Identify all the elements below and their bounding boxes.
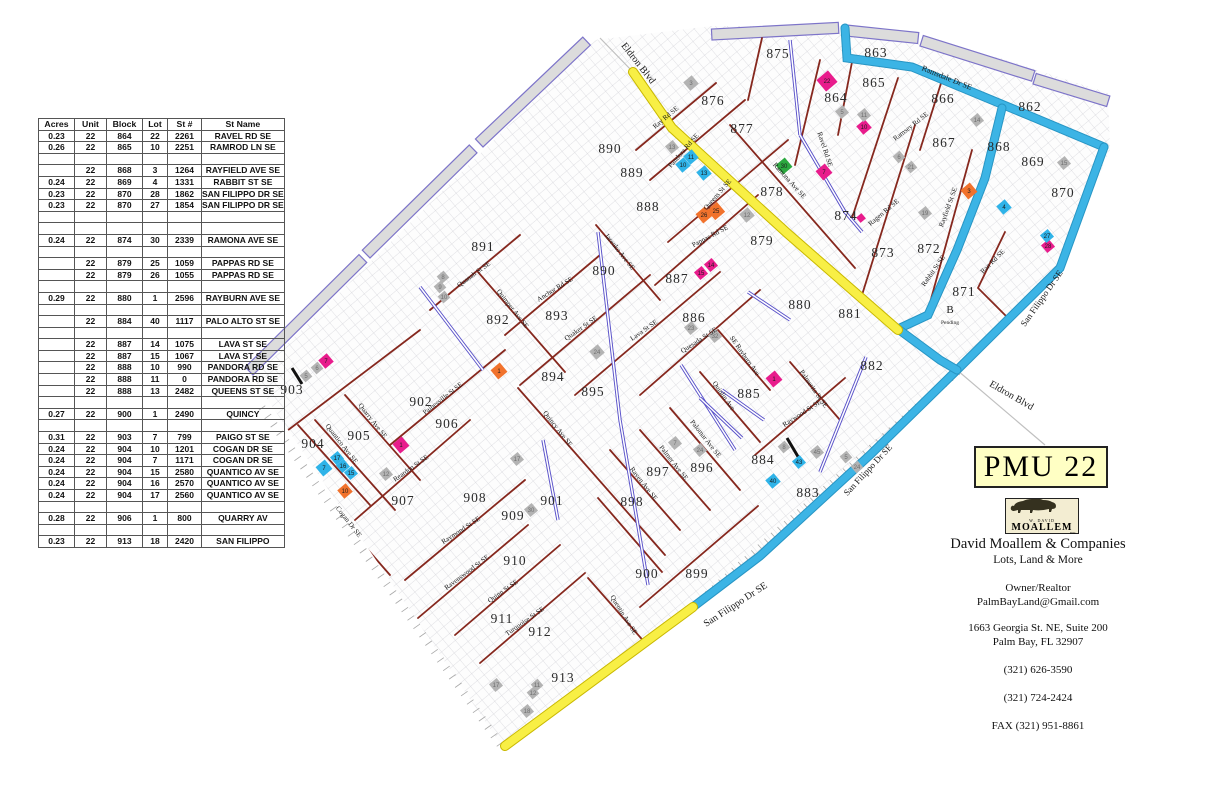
table-cell bbox=[168, 304, 202, 316]
boundary-tick bbox=[390, 590, 397, 595]
table-cell bbox=[39, 385, 75, 397]
table-cell bbox=[107, 420, 143, 432]
table-cell: 22 bbox=[75, 316, 107, 328]
pmu-title: PMU 22 bbox=[984, 450, 1099, 484]
block-number: 883 bbox=[796, 485, 819, 500]
lot-table-body: 0.2322864222261RAVEL RD SE0.262286510225… bbox=[39, 130, 285, 547]
table-cell: 1171 bbox=[168, 455, 202, 467]
table-cell bbox=[143, 304, 168, 316]
table-cell: 2570 bbox=[168, 478, 202, 490]
table-cell: COGAN DR SE bbox=[202, 455, 285, 467]
table-cell bbox=[75, 153, 107, 165]
table-cell: 10 bbox=[143, 142, 168, 154]
block-number: 900 bbox=[635, 566, 658, 581]
block-number: 867 bbox=[932, 135, 955, 150]
lot-number: 12 bbox=[530, 691, 537, 697]
table-cell: 2580 bbox=[168, 466, 202, 478]
table-cell: 904 bbox=[107, 443, 143, 455]
street-label: Eldron Blvd bbox=[987, 379, 1035, 413]
table-cell: RAMONA AVE SE bbox=[202, 234, 285, 246]
table-cell: 2339 bbox=[168, 234, 202, 246]
pending-label: Pending bbox=[941, 320, 959, 326]
table-cell: 864 bbox=[107, 130, 143, 142]
lot-number: 45 bbox=[814, 450, 821, 456]
table-cell: RAVEL RD SE bbox=[202, 130, 285, 142]
table-cell bbox=[39, 281, 75, 293]
table-cell: PAPPAS RD SE bbox=[202, 258, 285, 270]
lot-number: 27 bbox=[1044, 234, 1051, 240]
table-row: 0.2322870281862SAN FILIPPO DR SE bbox=[39, 188, 285, 200]
table-cell: 10 bbox=[143, 443, 168, 455]
block-number: 864 bbox=[824, 90, 847, 105]
boundary-tick bbox=[384, 582, 391, 587]
table-cell bbox=[143, 524, 168, 536]
block-number: 888 bbox=[636, 199, 659, 214]
lot-number: 17 bbox=[514, 457, 521, 463]
table-cell: 22 bbox=[75, 142, 107, 154]
lot-number: 26 bbox=[701, 213, 708, 219]
table-row: 22887151067LAVA ST SE bbox=[39, 350, 285, 362]
table-cell: PAPPAS RD SE bbox=[202, 269, 285, 281]
table-cell bbox=[168, 211, 202, 223]
boundary-tick bbox=[318, 490, 325, 495]
lot-number: 13 bbox=[701, 171, 708, 177]
boundary-tick bbox=[407, 616, 414, 621]
boundary-tick bbox=[372, 565, 379, 570]
table-cell bbox=[143, 397, 168, 409]
table-cell: 2596 bbox=[168, 292, 202, 304]
table-cell: 2560 bbox=[168, 490, 202, 502]
table-cell: QUANTICO AV SE bbox=[202, 466, 285, 478]
boundary-tick bbox=[378, 574, 385, 579]
table-cell bbox=[75, 524, 107, 536]
table-cell bbox=[75, 501, 107, 513]
table-cell: 1264 bbox=[168, 165, 202, 177]
table-cell bbox=[202, 223, 285, 235]
table-cell: 904 bbox=[107, 466, 143, 478]
table-cell: 0.29 bbox=[39, 292, 75, 304]
block-number: 880 bbox=[788, 297, 811, 312]
table-cell bbox=[168, 524, 202, 536]
block-number: 874 bbox=[834, 208, 857, 223]
table-row bbox=[39, 246, 285, 258]
table-cell: 0.26 bbox=[39, 142, 75, 154]
lot-number: 43 bbox=[796, 460, 803, 466]
table-cell: 0.23 bbox=[39, 188, 75, 200]
table-cell: 0.23 bbox=[39, 536, 75, 548]
table-cell: 22 bbox=[75, 466, 107, 478]
boundary-tick bbox=[449, 674, 456, 679]
moallem-logo: W. DAVID MOALLEM INC bbox=[1005, 498, 1079, 534]
pmu-title-box: PMU 22 bbox=[974, 446, 1108, 488]
table-cell: 1117 bbox=[168, 316, 202, 328]
table-cell bbox=[168, 501, 202, 513]
lot-number: 18 bbox=[524, 709, 531, 715]
table-row: 22879251059PAPPAS RD SE bbox=[39, 258, 285, 270]
table-cell bbox=[75, 397, 107, 409]
table-cell: 22 bbox=[75, 165, 107, 177]
table-cell bbox=[39, 316, 75, 328]
block-number: 891 bbox=[471, 239, 494, 254]
table-row: 0.2322870271854SAN FILIPPO DR SE bbox=[39, 200, 285, 212]
table-cell bbox=[168, 223, 202, 235]
table-cell: LAVA ST SE bbox=[202, 350, 285, 362]
block-number: 878 bbox=[760, 184, 783, 199]
table-cell: RAYBURN AVE SE bbox=[202, 292, 285, 304]
table-cell: 0.27 bbox=[39, 408, 75, 420]
table-cell: 0.23 bbox=[39, 130, 75, 142]
table-cell: 2482 bbox=[168, 385, 202, 397]
table-row: 22888110PANDORA RD SE bbox=[39, 374, 285, 386]
table-cell bbox=[39, 397, 75, 409]
table-cell bbox=[168, 420, 202, 432]
boundary-tick bbox=[306, 473, 313, 478]
map-sheet: 2210728151411726253110111013427434017716… bbox=[0, 0, 1210, 792]
lot-number: 10 bbox=[680, 163, 687, 169]
table-cell bbox=[107, 327, 143, 339]
column-header: Acres bbox=[39, 119, 75, 131]
table-cell bbox=[143, 327, 168, 339]
table-cell: 22 bbox=[75, 536, 107, 548]
block-number: 910 bbox=[503, 553, 526, 568]
table-cell bbox=[107, 397, 143, 409]
table-cell: 7 bbox=[143, 432, 168, 444]
fax-number: FAX (321) 951-8861 bbox=[950, 720, 1126, 732]
block-number: 881 bbox=[838, 306, 861, 321]
block-number: 893 bbox=[545, 308, 568, 323]
lot-number: 17 bbox=[334, 456, 341, 462]
lot-listing-table: AcresUnitBlockLotSt #St Name 0.232286422… bbox=[38, 118, 285, 548]
lot-number: 24 bbox=[697, 448, 704, 454]
table-cell: 1201 bbox=[168, 443, 202, 455]
table-cell bbox=[75, 281, 107, 293]
lot-number: 10 bbox=[861, 125, 868, 131]
column-header: St Name bbox=[202, 119, 285, 131]
table-cell: 22 bbox=[75, 339, 107, 351]
table-cell bbox=[168, 246, 202, 258]
table-cell: 22 bbox=[75, 490, 107, 502]
table-cell: LAVA ST SE bbox=[202, 339, 285, 351]
table-cell: 1 bbox=[143, 408, 168, 420]
table-row bbox=[39, 420, 285, 432]
block-number: 879 bbox=[750, 233, 773, 248]
table-cell: SAN FILIPPO DR SE bbox=[202, 200, 285, 212]
table-cell bbox=[39, 420, 75, 432]
block-number: 866 bbox=[931, 91, 954, 106]
table-cell bbox=[39, 269, 75, 281]
block-number: 862 bbox=[1018, 99, 1041, 114]
table-cell: RAYFIELD AVE SE bbox=[202, 165, 285, 177]
company-tagline: Lots, Land & More bbox=[950, 554, 1126, 566]
table-cell: 22 bbox=[75, 130, 107, 142]
table-cell: 865 bbox=[107, 142, 143, 154]
lot-number: 14 bbox=[708, 263, 715, 269]
table-row bbox=[39, 327, 285, 339]
lot-number: 23 bbox=[688, 326, 695, 332]
table-cell bbox=[75, 246, 107, 258]
lot-number: 14 bbox=[974, 118, 981, 124]
lot-number: 10 bbox=[342, 489, 349, 495]
block-number: 882 bbox=[860, 358, 883, 373]
table-cell: RABBIT ST SE bbox=[202, 176, 285, 188]
table-cell bbox=[75, 327, 107, 339]
block-number: 908 bbox=[463, 490, 486, 505]
table-cell: 1854 bbox=[168, 200, 202, 212]
table-cell: 15 bbox=[143, 350, 168, 362]
boundary-tick bbox=[431, 649, 438, 654]
lot-number: 15 bbox=[698, 271, 705, 277]
table-cell: 0.31 bbox=[39, 432, 75, 444]
lot-number: 11 bbox=[688, 155, 695, 161]
table-cell: 10 bbox=[143, 362, 168, 374]
table-row: 0.2422904162570QUANTICO AV SE bbox=[39, 478, 285, 490]
block-number: 875 bbox=[766, 46, 789, 61]
table-cell: 888 bbox=[107, 362, 143, 374]
table-cell: 0.24 bbox=[39, 478, 75, 490]
table-cell: 0.24 bbox=[39, 234, 75, 246]
table-cell: 22 bbox=[75, 513, 107, 525]
table-row: 0.2322913182420SAN FILIPPO bbox=[39, 536, 285, 548]
block-number: 885 bbox=[737, 386, 760, 401]
table-cell: 7 bbox=[143, 455, 168, 467]
table-cell: 870 bbox=[107, 188, 143, 200]
table-row: 2288810990PANDORA RD SE bbox=[39, 362, 285, 374]
table-cell: 1862 bbox=[168, 188, 202, 200]
boundary-tick bbox=[396, 599, 403, 604]
block-number: 876 bbox=[701, 93, 724, 108]
table-cell: 0.28 bbox=[39, 513, 75, 525]
table-cell: QUEENS ST SE bbox=[202, 385, 285, 397]
table-cell bbox=[39, 339, 75, 351]
block-number: 897 bbox=[646, 464, 669, 479]
lot-number: 22 bbox=[824, 79, 831, 85]
lot-number: 17 bbox=[493, 683, 500, 689]
boundary-tick bbox=[300, 464, 307, 469]
lion-icon bbox=[1007, 499, 1077, 513]
table-cell: 913 bbox=[107, 536, 143, 548]
block-number: 906 bbox=[435, 416, 458, 431]
table-row: 0.292288012596RAYBURN AVE SE bbox=[39, 292, 285, 304]
table-cell: PANDORA RD SE bbox=[202, 374, 285, 386]
owner-role: Owner/Realtor bbox=[950, 582, 1126, 594]
table-cell: 887 bbox=[107, 350, 143, 362]
table-cell: 0.23 bbox=[39, 200, 75, 212]
contact-block: David Moallem & Companies Lots, Land & M… bbox=[950, 536, 1126, 732]
table-cell bbox=[143, 420, 168, 432]
table-cell bbox=[39, 362, 75, 374]
table-row bbox=[39, 281, 285, 293]
table-cell: QUANTICO AV SE bbox=[202, 478, 285, 490]
block-number: 912 bbox=[528, 624, 551, 639]
table-row bbox=[39, 304, 285, 316]
table-cell: PANDORA RD SE bbox=[202, 362, 285, 374]
table-cell: 2261 bbox=[168, 130, 202, 142]
table-cell: 888 bbox=[107, 385, 143, 397]
table-cell bbox=[39, 327, 75, 339]
column-header: Lot bbox=[143, 119, 168, 131]
table-cell: 26 bbox=[143, 269, 168, 281]
table-cell: 0.24 bbox=[39, 455, 75, 467]
table-cell: 870 bbox=[107, 200, 143, 212]
table-cell: 22 bbox=[75, 188, 107, 200]
table-cell: 1075 bbox=[168, 339, 202, 351]
table-cell: 22 bbox=[75, 385, 107, 397]
table-cell: 869 bbox=[107, 176, 143, 188]
logo-name-text: MOALLEM bbox=[1006, 523, 1078, 532]
table-cell: 22 bbox=[75, 234, 107, 246]
company-name: David Moallem & Companies bbox=[950, 536, 1126, 553]
table-cell bbox=[39, 153, 75, 165]
block-number: 894 bbox=[541, 369, 564, 384]
table-cell: 22 bbox=[75, 374, 107, 386]
lot-number: 10 bbox=[441, 295, 448, 301]
table-cell bbox=[168, 281, 202, 293]
block-number: 895 bbox=[581, 384, 604, 399]
table-cell: QUINCY bbox=[202, 408, 285, 420]
table-row: 0.2322864222261RAVEL RD SE bbox=[39, 130, 285, 142]
table-cell bbox=[202, 327, 285, 339]
table-cell: PALO ALTO ST SE bbox=[202, 316, 285, 328]
table-cell bbox=[143, 501, 168, 513]
boundary-tick bbox=[419, 632, 426, 637]
table-cell bbox=[143, 153, 168, 165]
table-cell: 903 bbox=[107, 432, 143, 444]
lot-number: 13 bbox=[669, 145, 676, 151]
table-cell: 17 bbox=[143, 490, 168, 502]
table-cell: 1055 bbox=[168, 269, 202, 281]
table-cell bbox=[107, 501, 143, 513]
table-cell: 990 bbox=[168, 362, 202, 374]
table-cell: 22 bbox=[75, 478, 107, 490]
table-cell: 879 bbox=[107, 258, 143, 270]
table-cell: 40 bbox=[143, 316, 168, 328]
block-number: 911 bbox=[491, 611, 514, 626]
table-cell: 2420 bbox=[168, 536, 202, 548]
table-row bbox=[39, 153, 285, 165]
block-number: 870 bbox=[1051, 185, 1074, 200]
table-cell bbox=[107, 281, 143, 293]
block-number: 899 bbox=[685, 566, 708, 581]
block-number: 890 bbox=[598, 141, 621, 156]
boundary-tick bbox=[425, 641, 432, 646]
table-cell bbox=[143, 281, 168, 293]
table-cell bbox=[107, 524, 143, 536]
lion-silhouette bbox=[1011, 499, 1056, 513]
block-number: 889 bbox=[620, 165, 643, 180]
table-cell bbox=[39, 246, 75, 258]
table-cell bbox=[202, 153, 285, 165]
table-cell bbox=[107, 304, 143, 316]
table-row: 2286831264RAYFIELD AVE SE bbox=[39, 165, 285, 177]
table-cell: 28 bbox=[143, 188, 168, 200]
table-row: 0.2622865102251RAMROD LN SE bbox=[39, 142, 285, 154]
table-cell: 1 bbox=[143, 513, 168, 525]
table-cell: 0.24 bbox=[39, 466, 75, 478]
block-number: 869 bbox=[1021, 154, 1044, 169]
table-cell: 799 bbox=[168, 432, 202, 444]
table-cell bbox=[39, 223, 75, 235]
table-cell: 904 bbox=[107, 478, 143, 490]
table-cell bbox=[39, 350, 75, 362]
table-cell: 800 bbox=[168, 513, 202, 525]
table-cell: 880 bbox=[107, 292, 143, 304]
boundary-tick bbox=[413, 624, 420, 629]
table-cell: QUARRY AV bbox=[202, 513, 285, 525]
table-cell: 2490 bbox=[168, 408, 202, 420]
boundary-tick bbox=[354, 540, 361, 545]
block-number: 872 bbox=[917, 241, 940, 256]
table-cell: 1331 bbox=[168, 176, 202, 188]
table-row: 22884401117PALO ALTO ST SE bbox=[39, 316, 285, 328]
table-cell: 874 bbox=[107, 234, 143, 246]
table-cell: 0.24 bbox=[39, 490, 75, 502]
table-cell: 0.24 bbox=[39, 176, 75, 188]
table-cell: 900 bbox=[107, 408, 143, 420]
block-number: 905 bbox=[347, 428, 370, 443]
table-row: 0.2422874302339RAMONA AVE SE bbox=[39, 234, 285, 246]
table-cell: 22 bbox=[143, 130, 168, 142]
table-cell: 884 bbox=[107, 316, 143, 328]
lot-number: 21 bbox=[908, 165, 915, 171]
block-number: 865 bbox=[862, 75, 885, 90]
table-cell: 3 bbox=[143, 165, 168, 177]
table-cell bbox=[75, 304, 107, 316]
block-number: 884 bbox=[751, 452, 774, 467]
table-cell: 22 bbox=[75, 292, 107, 304]
lot-number: 11 bbox=[861, 113, 868, 119]
table-cell: 11 bbox=[143, 374, 168, 386]
boundary-tick bbox=[402, 607, 409, 612]
lot-table-header: AcresUnitBlockLotSt #St Name bbox=[39, 119, 285, 131]
table-cell: 1 bbox=[143, 292, 168, 304]
table-cell: SAN FILIPPO bbox=[202, 536, 285, 548]
block-number: 902 bbox=[409, 394, 432, 409]
table-cell bbox=[202, 524, 285, 536]
table-cell: 22 bbox=[75, 432, 107, 444]
lot-number: 15 bbox=[348, 471, 355, 477]
block-number: 863 bbox=[864, 45, 887, 60]
block-number: 877 bbox=[730, 121, 753, 136]
table-cell: RAMROD LN SE bbox=[202, 142, 285, 154]
table-row: 22887141075LAVA ST SE bbox=[39, 339, 285, 351]
boundary-tick bbox=[366, 557, 373, 562]
phone-number-1: (321) 626-3590 bbox=[950, 664, 1126, 676]
block-number: 886 bbox=[682, 310, 705, 325]
lot-number: 16 bbox=[340, 464, 347, 470]
table-cell bbox=[202, 211, 285, 223]
pending-block-letter: B bbox=[946, 304, 953, 316]
table-row bbox=[39, 223, 285, 235]
table-cell bbox=[39, 524, 75, 536]
table-cell bbox=[39, 501, 75, 513]
table-cell: 904 bbox=[107, 490, 143, 502]
table-cell: 0.24 bbox=[39, 443, 75, 455]
table-cell bbox=[75, 223, 107, 235]
block-number: 871 bbox=[952, 284, 975, 299]
lot-number: 11 bbox=[534, 683, 541, 689]
table-cell: 22 bbox=[75, 176, 107, 188]
table-cell bbox=[143, 211, 168, 223]
table-cell bbox=[107, 153, 143, 165]
table-cell bbox=[202, 246, 285, 258]
email-text: PalmBayLand@Gmail.com bbox=[950, 596, 1126, 608]
table-cell: QUANTICO AV SE bbox=[202, 490, 285, 502]
table-cell: 0 bbox=[168, 374, 202, 386]
table-cell: 18 bbox=[143, 536, 168, 548]
table-cell: 13 bbox=[143, 385, 168, 397]
table-cell: 22 bbox=[75, 258, 107, 270]
table-cell: 22 bbox=[75, 455, 107, 467]
